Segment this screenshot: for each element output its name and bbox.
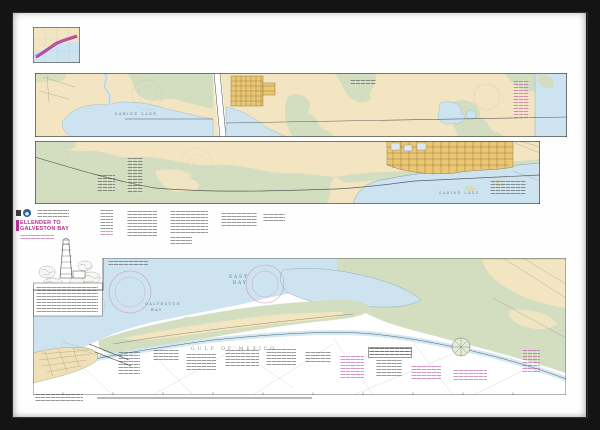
note-text-block: [221, 213, 257, 227]
salt-dome-contours: [452, 338, 470, 356]
note-text-block: [186, 354, 216, 370]
note-text-block: [170, 211, 208, 235]
note-text-block: [153, 350, 179, 362]
agency-seal: [16, 209, 32, 217]
chart-title-line2: GALVESTON BAY: [20, 226, 69, 232]
note-text-block: [266, 349, 296, 365]
footer-credit-line: [97, 397, 312, 399]
footer-credit-lines: [35, 394, 83, 401]
coverage-index-inset-map: [33, 27, 80, 63]
framed-nautical-chart: SABINE LAKE: [0, 0, 600, 430]
note-text-block: [263, 214, 285, 222]
note-text-block: [340, 356, 364, 378]
note-text-block: [225, 350, 259, 368]
galveston-bay-label-line2: BAY: [151, 308, 163, 312]
note-text-block: [513, 81, 529, 119]
note-text-block: [170, 237, 192, 245]
note-text-block: [522, 350, 540, 372]
east-bay-label-line1: EAST: [229, 274, 249, 279]
note-text-block: [490, 181, 526, 194]
note-text-block: [350, 80, 376, 86]
note-text-block: [100, 210, 113, 230]
note-text-block: [368, 347, 412, 358]
note-text-block: [305, 352, 331, 364]
note-text-block: [100, 231, 113, 237]
agency-text-lines: [37, 210, 69, 218]
note-text-block: [118, 352, 140, 376]
note-text-block: [127, 211, 157, 237]
note-text-block: [97, 175, 115, 191]
note-text-block: [127, 158, 143, 194]
east-bay-label-line2: BAY: [233, 280, 248, 285]
note-text-block: [108, 261, 148, 267]
galveston-bay-label-line1: GALVESTON: [145, 302, 181, 306]
note-text-block: [453, 370, 487, 382]
sabine-lake-label-strip2: SABINE LAKE: [439, 191, 480, 195]
picture-frame-right: [586, 0, 600, 430]
sabine-lake-label-strip1: SABINE LAKE: [115, 112, 157, 116]
note-text-block: [411, 366, 441, 380]
title-accent-bar: [16, 220, 19, 231]
note-text-block: [376, 360, 402, 376]
strip-chart-middle: SABINE LAKE: [35, 141, 540, 204]
strip-chart-top: SABINE LAKE: [35, 73, 567, 137]
notes-box-text: [36, 287, 98, 312]
noaa-logo-icon: [23, 209, 31, 217]
